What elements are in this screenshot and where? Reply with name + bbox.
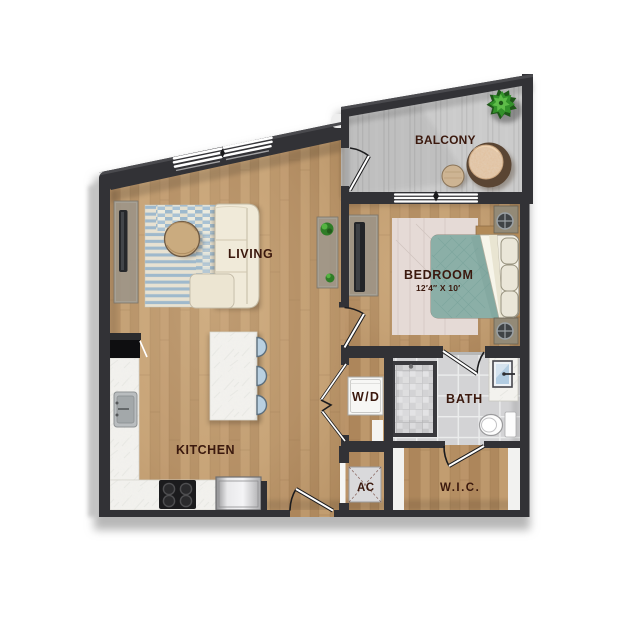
svg-text:12′4″ X 10′: 12′4″ X 10′ <box>416 283 460 293</box>
svg-text:KITCHEN: KITCHEN <box>176 443 235 457</box>
svg-text:BEDROOM: BEDROOM <box>404 268 473 282</box>
svg-text:W.I.C.: W.I.C. <box>440 482 480 494</box>
svg-text:BATH: BATH <box>446 392 483 406</box>
svg-text:LIVING: LIVING <box>228 247 273 261</box>
svg-text:W/D: W/D <box>352 390 380 404</box>
svg-text:AC: AC <box>357 482 375 494</box>
svg-text:BALCONY: BALCONY <box>415 133 476 147</box>
